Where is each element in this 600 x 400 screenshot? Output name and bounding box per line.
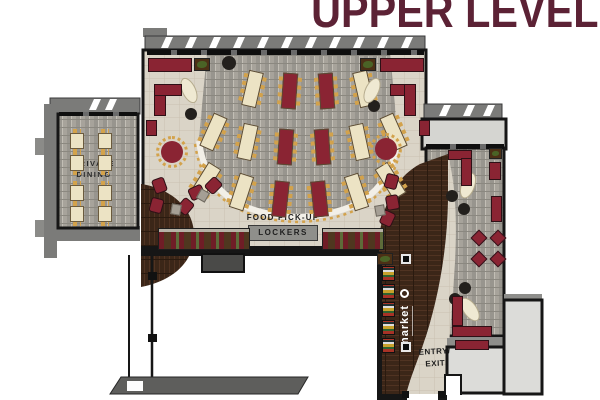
- bench-seat: [491, 196, 502, 222]
- planter: [360, 58, 376, 71]
- private-dining-label-line2: DINING: [59, 170, 129, 181]
- booth-row: [322, 228, 384, 250]
- window-strip-main: [147, 50, 424, 55]
- private-dining-table: [98, 206, 112, 222]
- sign-marker: [401, 342, 411, 352]
- entry-door-jamb: [402, 391, 409, 398]
- bench-seat: [148, 58, 192, 72]
- market-shelf: [382, 302, 395, 317]
- private-dining-table: [98, 133, 112, 149]
- round-cafe-table: [446, 190, 458, 202]
- round-cafe-table: [185, 108, 197, 120]
- round-cafe-table: [459, 282, 471, 294]
- market-shelf: [382, 320, 395, 335]
- entry-exit-label: ENTRY/ EXIT: [409, 345, 460, 372]
- round-cafe-table: [458, 203, 470, 215]
- bench-seat: [380, 58, 424, 72]
- floor-plan-scene: UPPER LEVEL PRIVATE DINING FOOD PICK-UP …: [0, 0, 600, 400]
- private-dining-table: [70, 206, 84, 222]
- lounge-chair: [385, 194, 400, 211]
- round-table: [375, 138, 397, 160]
- market-shelf: [382, 284, 395, 299]
- booth-row: [158, 228, 250, 250]
- bench-seat: [146, 120, 157, 136]
- dining-table-maroon: [277, 129, 294, 166]
- vestibule-b: [504, 300, 542, 394]
- private-dining-table: [70, 155, 84, 171]
- round-table: [161, 141, 183, 163]
- market-shelf: [382, 266, 395, 281]
- bench-seat: [461, 158, 472, 186]
- bench-seat: [154, 84, 182, 96]
- locker-bump: [202, 254, 244, 272]
- bench-seat: [452, 296, 463, 326]
- dining-table-maroon: [310, 180, 329, 217]
- lockers-sign: LOCKERS: [248, 225, 318, 241]
- side-table: [374, 204, 386, 217]
- dining-table-cream: [348, 123, 370, 161]
- entry-door-jamb: [438, 391, 445, 398]
- planter: [489, 148, 502, 159]
- side-table: [170, 203, 182, 216]
- bench-seat: [404, 84, 416, 116]
- private-dining-table: [98, 155, 112, 171]
- market-shelf: [382, 338, 395, 353]
- bench-seat: [455, 340, 489, 350]
- private-dining-table: [70, 133, 84, 149]
- dining-table-maroon: [314, 129, 331, 166]
- dining-table-maroon: [281, 73, 298, 110]
- dining-table-cream: [236, 123, 258, 161]
- bench-seat: [419, 120, 430, 136]
- window-strip-private: [59, 112, 137, 116]
- market-logo-icon: [400, 289, 409, 298]
- planter: [377, 253, 393, 265]
- market-sign-text: market: [400, 305, 411, 347]
- sign-marker: [401, 254, 411, 264]
- private-dining-table: [70, 185, 84, 201]
- dining-table-maroon: [318, 73, 335, 110]
- dining-table-cream: [241, 70, 264, 108]
- bench-seat: [452, 326, 492, 337]
- bench-seat: [489, 162, 501, 180]
- floorplan-svg: [0, 0, 600, 400]
- planter: [194, 58, 210, 71]
- round-cafe-table: [222, 56, 236, 70]
- private-dining-table: [98, 185, 112, 201]
- page-title: UPPER LEVEL: [311, 0, 598, 34]
- dining-table-maroon: [271, 180, 290, 217]
